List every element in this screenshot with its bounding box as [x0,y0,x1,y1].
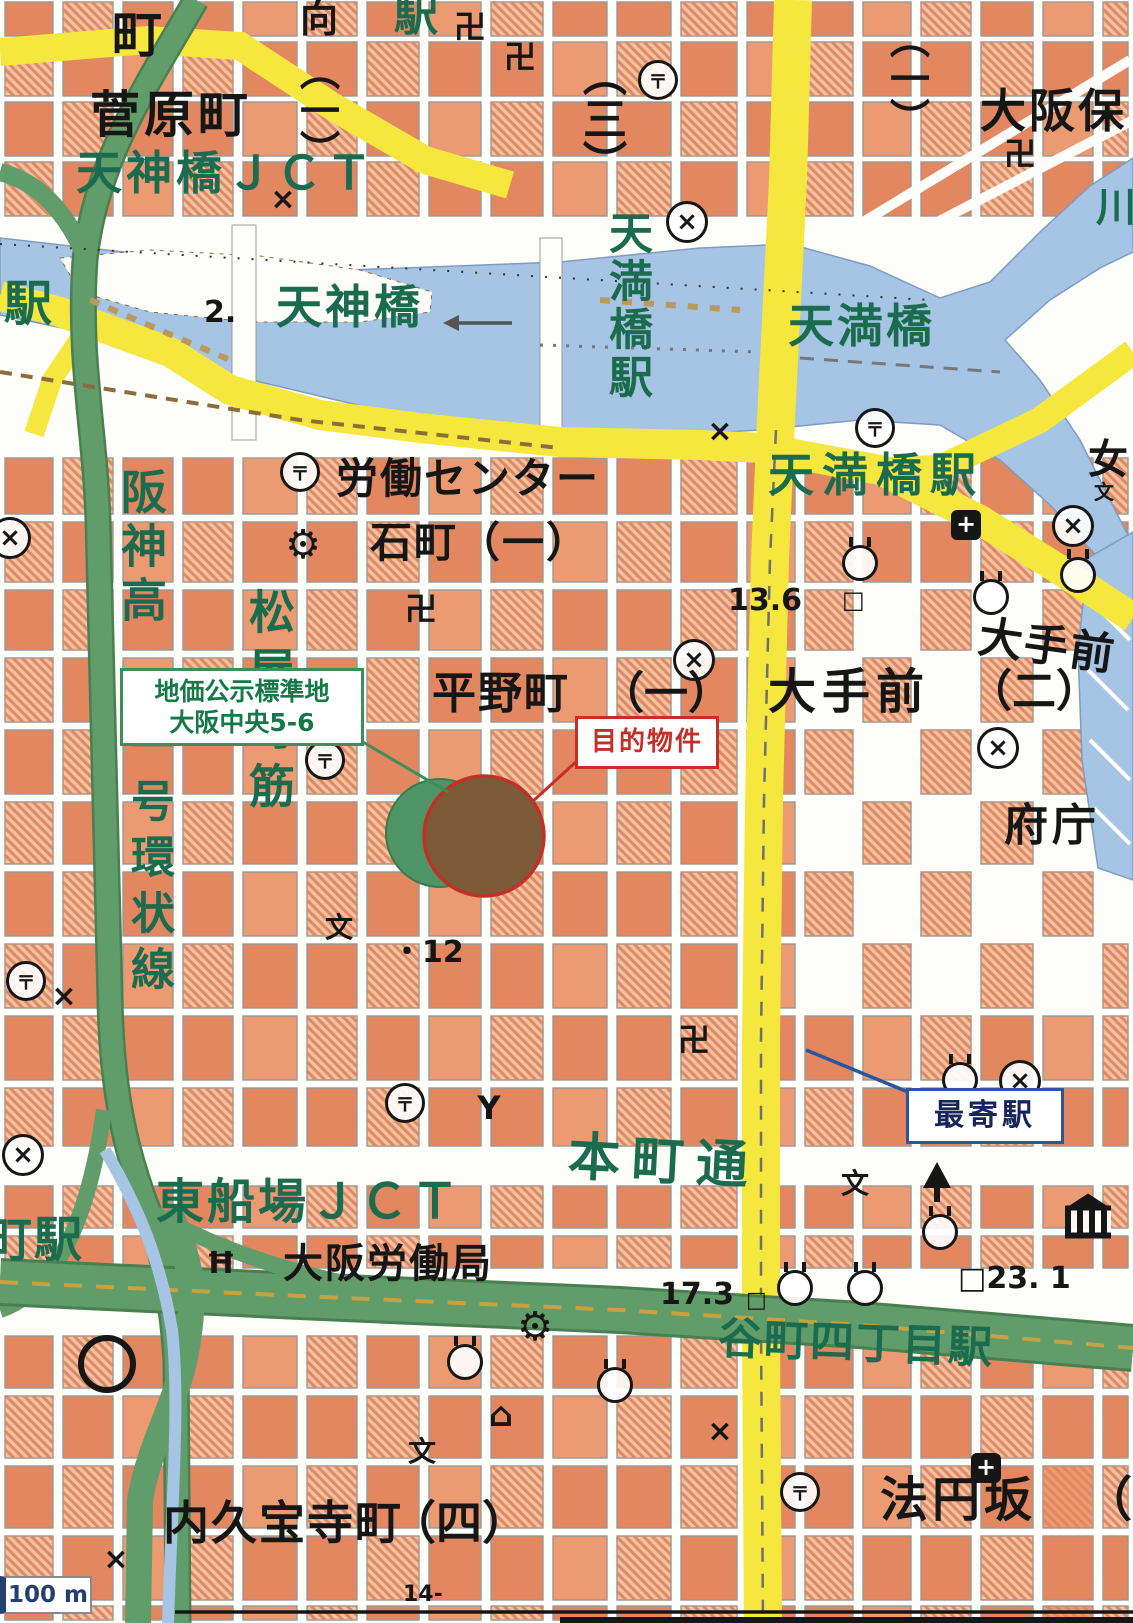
shrine-icon [922,1214,958,1250]
map-label: 府庁 [1004,804,1100,848]
map-label: 石町（一） [370,522,590,564]
koban-icon [101,1545,131,1575]
map-label: 平野町 [432,672,570,716]
map-label: （三） [578,52,622,184]
house-icon [486,1400,516,1430]
map-label: □ [746,1290,767,1312]
post-office-icon [855,408,895,448]
shrine-icon [1060,557,1096,593]
map-label: 谷町四丁目駅 [717,1317,994,1371]
nearest-station-callout-label: 最寄駅 [934,1097,1036,1135]
shrine-icon [777,1270,813,1306]
landmark-ring-icon [78,1335,136,1393]
school-icon [324,911,354,941]
shrine-icon [847,1270,883,1306]
map-label: 阪神高 [118,468,164,630]
standard-land-callout-line1: 地価公示標準地 [154,676,329,707]
map-label: 13.6 [728,586,802,616]
post-office-icon [385,1083,425,1123]
map-label: 14- [403,1584,443,1606]
map-label: 2. [204,298,236,328]
map-label: 大手前 [768,668,930,716]
map-label: （一） [600,672,732,716]
shrine-icon [597,1367,633,1403]
temple-icon [455,10,485,40]
map-label: 労働センター [336,458,600,500]
map-label: □23. 1 [958,1264,1071,1294]
map-label: 向 [300,0,338,38]
map-screenshot: 町向菅原町天神橋ＪＣＴ（一）駅（三）（一）大阪保川駅2.天神橋天満橋天満橋駅天満… [0,0,1133,1623]
map-label: 町 [112,10,162,60]
map-label: 17.3 [660,1280,734,1310]
standard-land-callout: 地価公示標準地 大阪中央5-6 [120,668,364,746]
map-label: （一） [296,50,336,170]
map-label: 法円坂 [880,1476,1036,1524]
map-label: 川 [1096,188,1133,228]
fire-station-icon [474,1093,504,1123]
map-label: 一号環状線 [126,722,170,1002]
map-label: 天満橋 [788,303,935,349]
target-property-callout-label: 目的物件 [591,726,703,759]
map-label: 女 [1088,440,1128,480]
scale-bar-label: 100 m [8,1582,88,1608]
map-label: 駅 [4,280,52,328]
shrine-icon [973,579,1009,615]
courthouse-icon [206,1248,236,1278]
map-label: 町駅 [0,1216,84,1264]
scale-bar: 100 m [0,1576,92,1614]
map-label: 本町通 [567,1131,761,1193]
bridge [540,238,562,446]
target-property-callout: 目的物件 [575,716,719,769]
koban-icon [705,417,735,447]
map-label: （二） [968,670,1100,714]
shrine-icon [447,1344,483,1380]
map-label: （四） [390,1500,528,1546]
map-label: 東船場ＪＣＴ [156,1178,462,1226]
temple-icon [1005,137,1035,167]
police-station-icon [1052,505,1094,547]
police-station-icon [666,201,708,243]
standard-land-callout-line2: 大阪中央5-6 [169,707,314,738]
post-office-icon [280,452,320,492]
map-label: 天満橋駅 [604,210,648,402]
map-label: （一） [886,18,926,138]
post-office-icon [6,961,46,1001]
target-site-circle [424,776,544,896]
koban-icon [705,1417,735,1447]
map-label: ・12 [392,938,464,968]
map-label: 天神橋 [276,284,423,330]
map-label: 駅 [394,0,438,38]
tower-icon [923,1162,951,1188]
map-label: 菅原町 [90,90,252,140]
map-label: （ [1084,1476,1132,1524]
temple-icon [406,592,436,622]
hospital-icon [951,510,981,540]
post-office-icon [780,1472,820,1512]
temple-icon [505,40,535,70]
police-station-icon [977,727,1019,769]
map-label: 内久宝寺町 [163,1500,403,1546]
temple-icon [679,1023,709,1053]
post-office-icon [305,740,345,780]
map-label: 大阪労働局 [283,1244,493,1284]
post-office-icon [638,60,678,100]
factory-icon [520,1312,550,1342]
museum-icon [1065,1206,1111,1239]
map-label: 大阪保 [980,88,1127,134]
school-icon [840,1167,870,1197]
factory-icon [288,530,318,560]
police-station-icon [2,1134,44,1176]
map-label: 天満橋駅 [768,452,984,498]
map-label: □ [842,588,865,612]
shrine-icon [842,545,878,581]
school-icon [407,1435,437,1465]
koban-icon [49,982,79,1012]
nearest-station-callout: 最寄駅 [906,1088,1064,1144]
